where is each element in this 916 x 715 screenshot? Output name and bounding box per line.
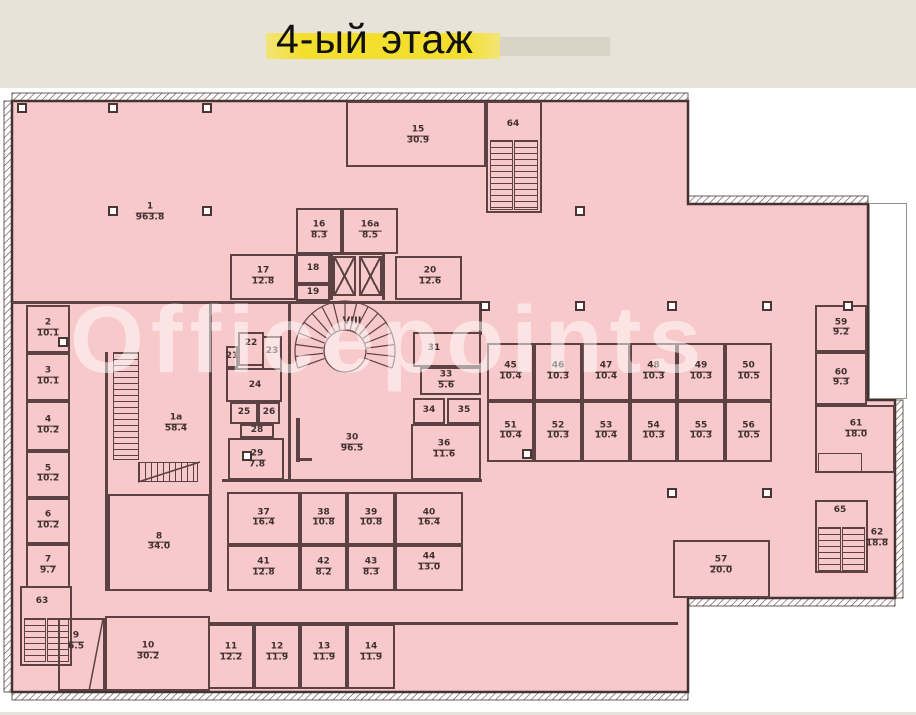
- column: [667, 488, 677, 498]
- room-52-label: 5210.3: [547, 421, 569, 442]
- stair-flight: [514, 140, 538, 210]
- room-28-label: 28: [251, 426, 264, 436]
- wall: [382, 252, 385, 300]
- room-63-label: 63: [36, 597, 49, 607]
- elevator: [333, 256, 356, 296]
- stair-flight: [842, 527, 865, 571]
- room-number: 22: [245, 339, 258, 349]
- room-number: 25: [238, 408, 251, 418]
- room-area: 16.4: [252, 518, 274, 528]
- room-12-label: 1211.9: [266, 643, 288, 664]
- column: [843, 301, 853, 311]
- room-number: 28: [251, 426, 264, 436]
- room-number: 64: [507, 120, 520, 130]
- room-area: 8.5: [362, 231, 378, 241]
- room-14-label: 1411.9: [360, 643, 382, 664]
- room-36-label: 3611.6: [433, 440, 455, 461]
- room-area: 96.5: [341, 444, 363, 454]
- room-25-label: 25: [238, 408, 251, 418]
- room-60-label: 609.3: [833, 368, 850, 389]
- room-area: 10.5: [737, 372, 759, 382]
- room-area: 12.6: [419, 277, 441, 287]
- room-4-label: 410.2: [37, 416, 59, 437]
- room-53-label: 5310.4: [595, 421, 617, 442]
- column: [58, 337, 68, 347]
- column: [108, 206, 118, 216]
- label-66: 66: [338, 347, 352, 358]
- column: [762, 301, 772, 311]
- room-18-label: 18: [307, 264, 320, 274]
- room-number: 21: [226, 352, 239, 362]
- room-area: 10.4: [595, 431, 617, 441]
- room-area: 12.8: [252, 277, 274, 287]
- slide: { "page": { "title": "4-ый этаж", "water…: [0, 0, 916, 715]
- terrace: [869, 203, 907, 399]
- column: [575, 206, 585, 216]
- room-area: 12.8: [252, 568, 274, 578]
- room-number: 65: [834, 506, 847, 516]
- room-26-label: 26: [263, 408, 276, 418]
- stair-flight: [818, 527, 841, 571]
- stair-flight: [818, 453, 862, 472]
- room-39-label: 3910.8: [360, 508, 382, 529]
- room-area: 10.3: [690, 372, 712, 382]
- room-61-label: 6118.0: [845, 420, 867, 441]
- room-number: 34: [423, 406, 436, 416]
- room-area: 9.7: [40, 566, 56, 576]
- room-area: 11.6: [433, 450, 455, 460]
- room-area: 10.3: [642, 372, 664, 382]
- room-area: 10.4: [595, 372, 617, 382]
- room-45-label: 4510.4: [499, 362, 521, 383]
- room-area: 10.3: [547, 372, 569, 382]
- column: [202, 206, 212, 216]
- room-area: 18.8: [866, 539, 888, 549]
- room-area: 11.9: [266, 653, 288, 663]
- room-23-label: 23: [266, 347, 279, 357]
- room-31-outline: [413, 332, 481, 367]
- room-area: 963.8: [136, 213, 164, 223]
- room-area: 34.0: [148, 542, 170, 552]
- room-1а-label: 1а58.4: [165, 414, 187, 435]
- column: [522, 449, 532, 459]
- room-5-label: 510.2: [37, 464, 59, 485]
- room-11-label: 1112.2: [220, 643, 242, 664]
- room-42-label: 428.2: [315, 558, 332, 579]
- room-number: 63: [36, 597, 49, 607]
- column: [667, 301, 677, 311]
- room-48-label: 4810.3: [642, 362, 664, 383]
- room-37-label: 3716.4: [252, 508, 274, 529]
- room-21-label: 21: [226, 352, 239, 362]
- room-area: 5.6: [438, 381, 454, 391]
- room-46-label: 4610.3: [547, 362, 569, 383]
- room-area: 20.0: [710, 566, 732, 576]
- room-area: 13.0: [418, 563, 440, 573]
- room-area: 10.3: [690, 431, 712, 441]
- label-VIII: VIII: [343, 316, 362, 327]
- room-area: 7.8: [249, 460, 265, 470]
- room-area: 9.3: [833, 378, 849, 388]
- column: [762, 488, 772, 498]
- room-area: 10.3: [547, 431, 569, 441]
- room-area: 6.5: [68, 642, 84, 652]
- room-number: 24: [249, 381, 262, 391]
- room-area: 10.5: [737, 431, 759, 441]
- room-area: 11.9: [313, 653, 335, 663]
- room-22-label: 22: [245, 339, 258, 349]
- room-area: 10.8: [312, 518, 334, 528]
- room-area: 10.2: [37, 426, 59, 436]
- column: [480, 301, 490, 311]
- room-area: 10.8: [360, 518, 382, 528]
- room-29-label: 297.8: [249, 450, 266, 471]
- room-area: 30.2: [137, 652, 159, 662]
- room-51-label: 5110.4: [499, 421, 521, 442]
- room-number: 31: [428, 344, 441, 354]
- room-64-label: 64: [507, 120, 520, 130]
- room-area: 30.9: [407, 136, 429, 146]
- room-area: 10.4: [499, 372, 521, 382]
- room-49-label: 4910.3: [690, 362, 712, 383]
- wall: [12, 301, 480, 304]
- room-19-label: 19: [307, 288, 320, 298]
- room-20-label: 2012.6: [419, 267, 441, 288]
- room-area: 8.2: [316, 568, 332, 578]
- room-30-label: 3096.5: [341, 434, 363, 455]
- room-number: 35: [458, 406, 471, 416]
- room-area: 10.1: [37, 377, 59, 387]
- floor-plan: Officepoints 1963.81а58.4210.1310.1410.2…: [0, 0, 916, 715]
- stair-flight: [113, 352, 139, 460]
- room-number: 19: [307, 288, 320, 298]
- room-area: 10.1: [37, 329, 59, 339]
- wall: [296, 458, 312, 461]
- stair-flight: [490, 140, 513, 210]
- elevator: [359, 256, 382, 296]
- room-8-label: 834.0: [148, 532, 170, 553]
- room-area: 58.4: [165, 424, 187, 434]
- wall: [296, 418, 300, 462]
- room-1-label: 1963.8: [136, 203, 164, 224]
- room-54-label: 5410.3: [642, 421, 664, 442]
- spiral-stair: [295, 301, 395, 372]
- room-area: 9.2: [833, 328, 849, 338]
- room-62-label: 6218.8: [866, 529, 888, 550]
- room-number: 23: [266, 347, 279, 357]
- room-15-label: 1530.9: [407, 126, 429, 147]
- room-area: 11.9: [360, 653, 382, 663]
- room-3-label: 310.1: [37, 367, 59, 388]
- room-43-label: 438.3: [363, 558, 380, 579]
- room-number: 18: [307, 264, 320, 274]
- room-59-label: 599.2: [833, 318, 850, 339]
- column: [575, 301, 585, 311]
- room-57-label: 5720.0: [710, 556, 732, 577]
- room-40-label: 4016.4: [418, 508, 440, 529]
- room-31-label: 31: [428, 344, 441, 354]
- stair-flight: [138, 462, 198, 482]
- room-area: 16.4: [418, 518, 440, 528]
- room-9-label: 96.5: [68, 632, 84, 653]
- room-34-label: 34: [423, 406, 436, 416]
- room-47-label: 4710.4: [595, 362, 617, 383]
- room-17-label: 1712.8: [252, 267, 274, 288]
- room-area: 10.4: [499, 431, 521, 441]
- room-area: 18.0: [845, 430, 867, 440]
- room-7-label: 79.7: [40, 556, 56, 577]
- room-area: 10.2: [37, 474, 59, 484]
- room-50-label: 5010.5: [737, 362, 759, 383]
- wall: [288, 301, 291, 482]
- room-area: 10.3: [642, 431, 664, 441]
- room-area: 10.2: [37, 521, 59, 531]
- room-56-label: 5610.5: [737, 421, 759, 442]
- room-35-label: 35: [458, 406, 471, 416]
- room-10-label: 1030.2: [137, 642, 159, 663]
- stair-flight: [24, 618, 46, 662]
- room-44-label: 4413.0: [418, 553, 440, 574]
- room-area: 12.2: [220, 653, 242, 663]
- room-2-label: 210.1: [37, 319, 59, 340]
- room-65-label: 65: [834, 506, 847, 516]
- room-41-label: 4112.8: [252, 558, 274, 579]
- room-6-label: 610.2: [37, 511, 59, 532]
- room-13-label: 1311.9: [313, 643, 335, 664]
- room-33-label: 335.6: [438, 371, 455, 392]
- room-area: 8.3: [363, 568, 379, 578]
- room-number: 26: [263, 408, 276, 418]
- room-24-label: 24: [249, 381, 262, 391]
- room-16-label: 168.3: [311, 221, 328, 242]
- room-55-label: 5510.3: [690, 421, 712, 442]
- room-area: 8.3: [311, 231, 327, 241]
- room-16а-label: 16а8.5: [359, 221, 382, 242]
- column: [17, 103, 27, 113]
- column: [202, 103, 212, 113]
- room-38-label: 3810.8: [312, 508, 334, 529]
- stair-flight: [47, 618, 69, 662]
- column: [108, 103, 118, 113]
